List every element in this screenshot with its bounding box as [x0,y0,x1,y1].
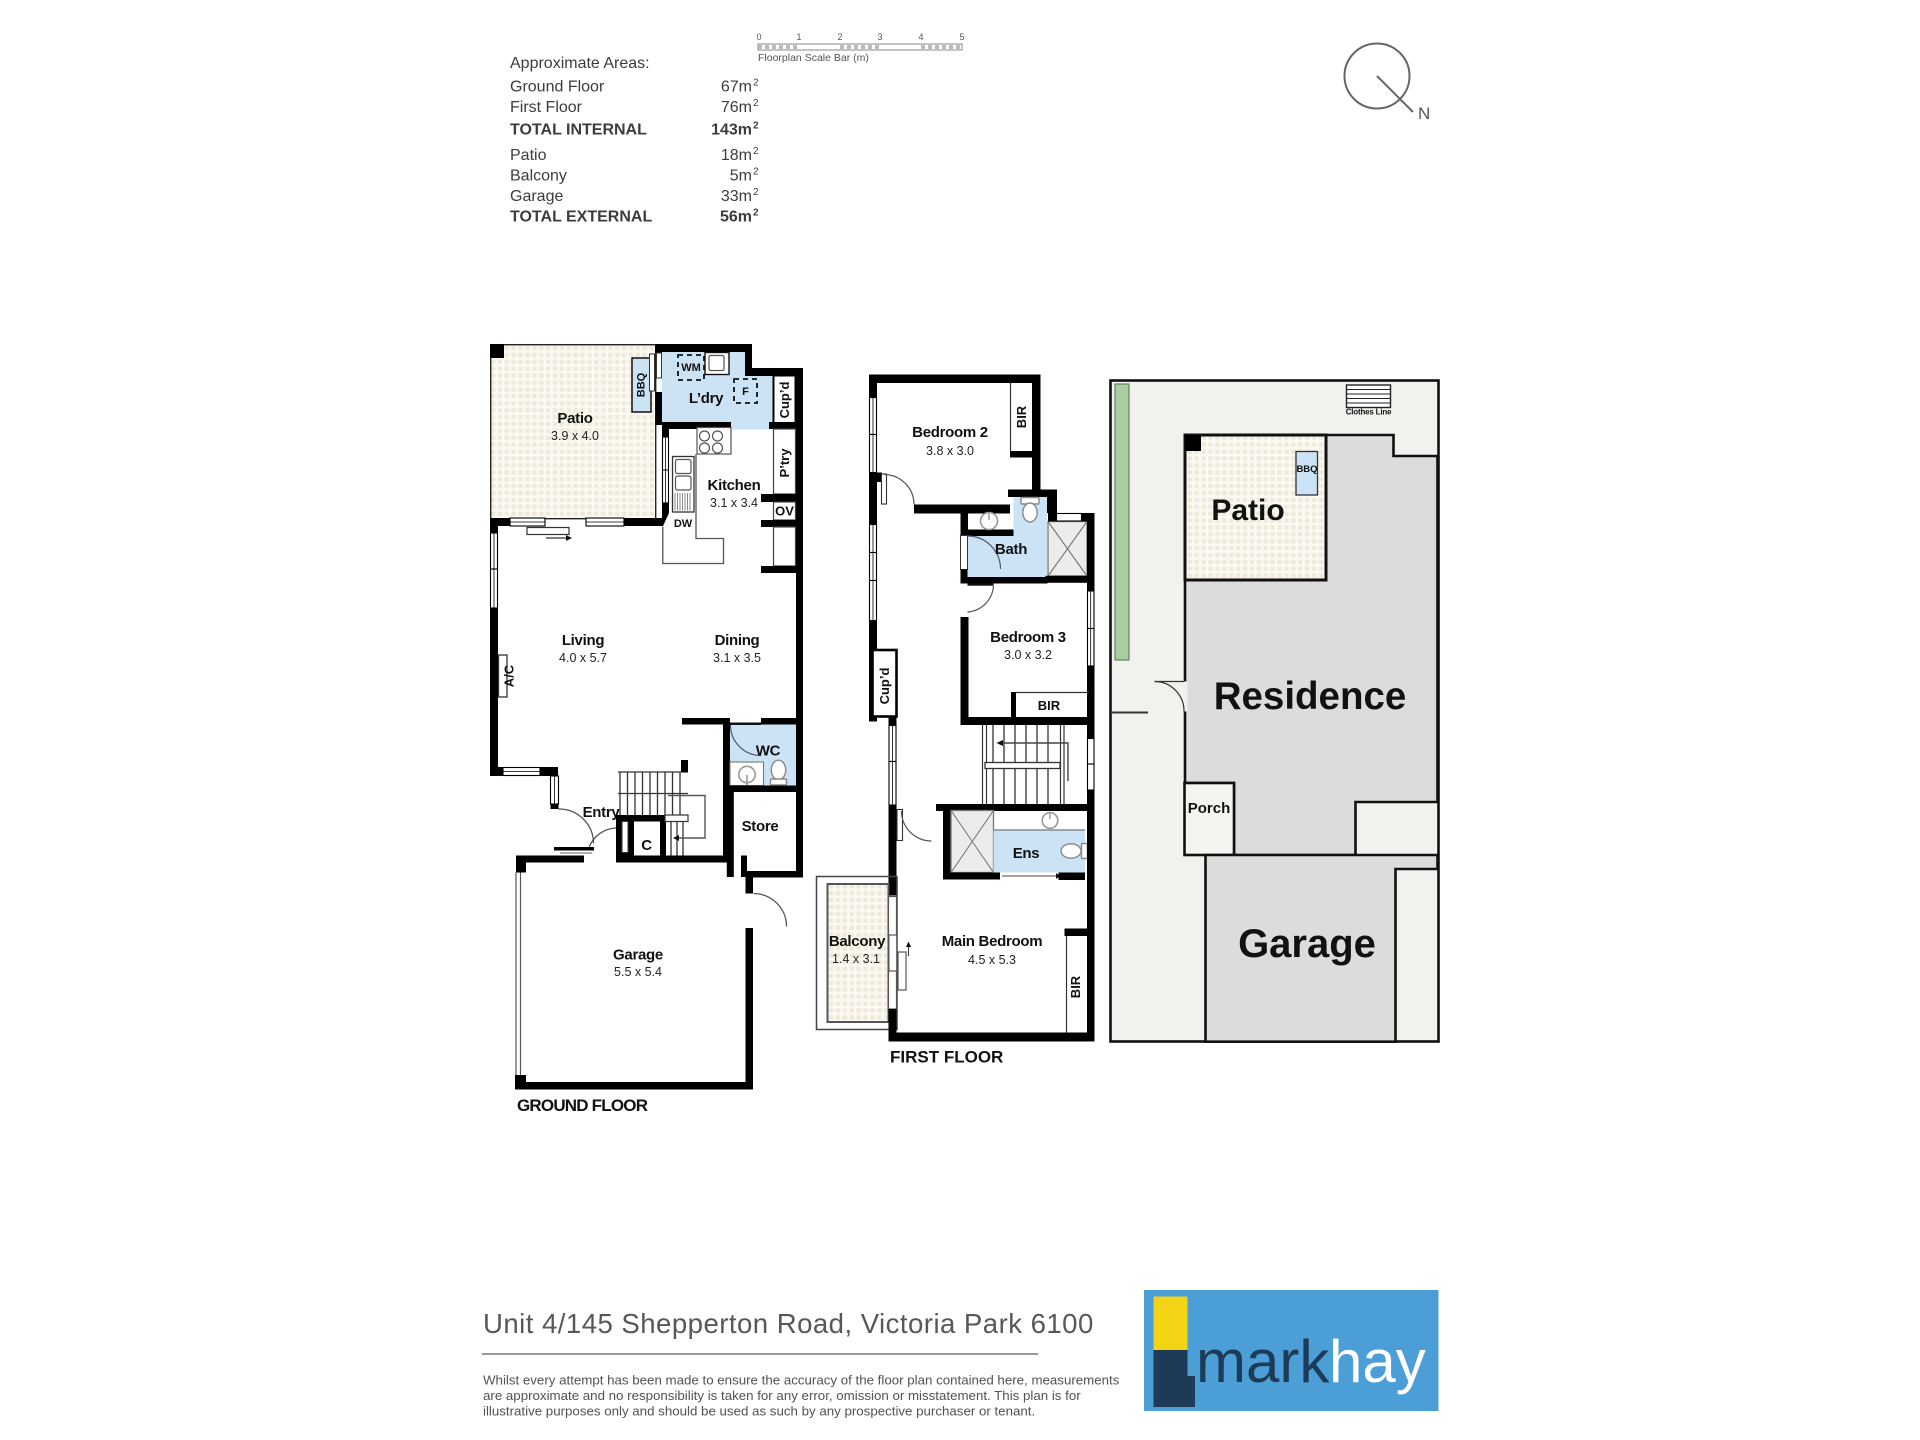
svg-text:Balcony: Balcony [829,933,886,950]
svg-text:hay: hay [1329,1328,1426,1395]
svg-text:illustrative purposes only and: illustrative purposes only and should be… [483,1404,1035,1419]
svg-text:Garage: Garage [510,188,563,205]
svg-text:Bath: Bath [995,541,1027,558]
svg-text:Balcony: Balcony [510,168,567,185]
svg-text:Floorplan Scale Bar (m): Floorplan Scale Bar (m) [758,52,869,64]
svg-text:0: 0 [756,32,761,42]
svg-text:WM: WM [681,362,701,374]
svg-text:76m: 76m [721,99,752,116]
svg-text:L’dry: L’dry [689,390,724,407]
svg-text:4.0 x 5.7: 4.0 x 5.7 [559,651,607,665]
svg-text:143m: 143m [711,122,752,139]
svg-text:1.4 x 3.1: 1.4 x 3.1 [832,952,880,966]
svg-text:2: 2 [753,208,759,219]
svg-text:Patio: Patio [557,410,592,427]
svg-text:Entry: Entry [583,804,621,821]
svg-text:Store: Store [742,818,779,835]
svg-text:56m: 56m [720,209,752,226]
svg-text:2: 2 [753,121,759,132]
svg-text:Porch: Porch [1188,800,1231,817]
svg-text:4.5 x 5.3: 4.5 x 5.3 [968,953,1016,967]
svg-text:5: 5 [959,32,964,42]
svg-text:Cup’d: Cup’d [777,382,792,419]
svg-text:DW: DW [674,518,693,530]
svg-text:5.5 x 5.4: 5.5 x 5.4 [614,965,662,979]
svg-text:A/C: A/C [502,664,517,687]
svg-text:Ens: Ens [1013,845,1040,862]
svg-text:TOTAL EXTERNAL: TOTAL EXTERNAL [510,209,652,226]
svg-text:Cup’d: Cup’d [877,668,892,705]
svg-text:C: C [641,837,652,854]
svg-text:Residence: Residence [1214,675,1407,718]
svg-text:Garage: Garage [613,947,663,964]
svg-text:Living: Living [562,632,605,649]
svg-text:Main Bedroom: Main Bedroom [942,933,1043,950]
svg-text:Unit 4/145 Shepperton Road, Vi: Unit 4/145 Shepperton Road, Victoria Par… [483,1308,1094,1339]
svg-text:1: 1 [796,32,801,42]
svg-text:3.9 x 4.0: 3.9 x 4.0 [551,429,599,443]
svg-text:5m: 5m [730,168,752,185]
svg-text:BIR: BIR [1068,975,1083,998]
svg-text:4: 4 [918,32,923,42]
svg-text:2: 2 [753,98,759,109]
svg-text:BBQ: BBQ [636,372,648,397]
svg-text:2: 2 [753,187,759,198]
svg-text:3.1 x 3.5: 3.1 x 3.5 [713,651,761,665]
svg-text:BIR: BIR [1038,698,1061,713]
svg-text:TOTAL INTERNAL: TOTAL INTERNAL [510,122,647,139]
svg-text:GROUND FLOOR: GROUND FLOOR [517,1096,648,1115]
svg-text:First Floor: First Floor [510,99,583,116]
svg-text:2: 2 [753,167,759,178]
svg-text:67m: 67m [721,79,752,96]
svg-text:Bedroom 2: Bedroom 2 [912,424,988,441]
svg-text:3.0 x 3.2: 3.0 x 3.2 [1004,648,1052,662]
svg-text:2: 2 [753,146,759,157]
svg-text:18m: 18m [721,147,752,164]
svg-text:Clothes Line: Clothes Line [1346,408,1392,417]
svg-text:3: 3 [877,32,882,42]
svg-text:Approximate Areas:: Approximate Areas: [510,55,650,72]
svg-text:Bedroom 3: Bedroom 3 [990,629,1066,646]
svg-text:33m: 33m [721,188,752,205]
svg-text:N: N [1418,104,1430,123]
svg-text:WC: WC [756,743,781,760]
svg-text:FIRST FLOOR: FIRST FLOOR [890,1048,1003,1067]
svg-text:F: F [742,386,749,398]
svg-text:BBQ: BBQ [1296,464,1317,475]
svg-text:Kitchen: Kitchen [708,477,761,494]
svg-text:Whilst every attempt has been: Whilst every attempt has been made to en… [483,1373,1120,1388]
svg-text:P’try: P’try [777,448,792,478]
svg-text:Ground Floor: Ground Floor [510,79,605,96]
svg-text:2: 2 [837,32,842,42]
svg-text:are approximate and no respons: are approximate and no responsibility is… [483,1388,1081,1403]
svg-text:Patio: Patio [510,147,547,164]
svg-text:3.8 x 3.0: 3.8 x 3.0 [926,444,974,458]
svg-text:3.1 x 3.4: 3.1 x 3.4 [710,496,758,510]
svg-text:OV: OV [775,504,794,519]
svg-text:Patio: Patio [1211,494,1284,527]
svg-text:Dining: Dining [715,632,760,649]
svg-text:BIR: BIR [1014,405,1029,428]
svg-text:mark: mark [1196,1328,1330,1395]
svg-text:Garage: Garage [1238,922,1376,966]
svg-text:2: 2 [753,78,759,89]
